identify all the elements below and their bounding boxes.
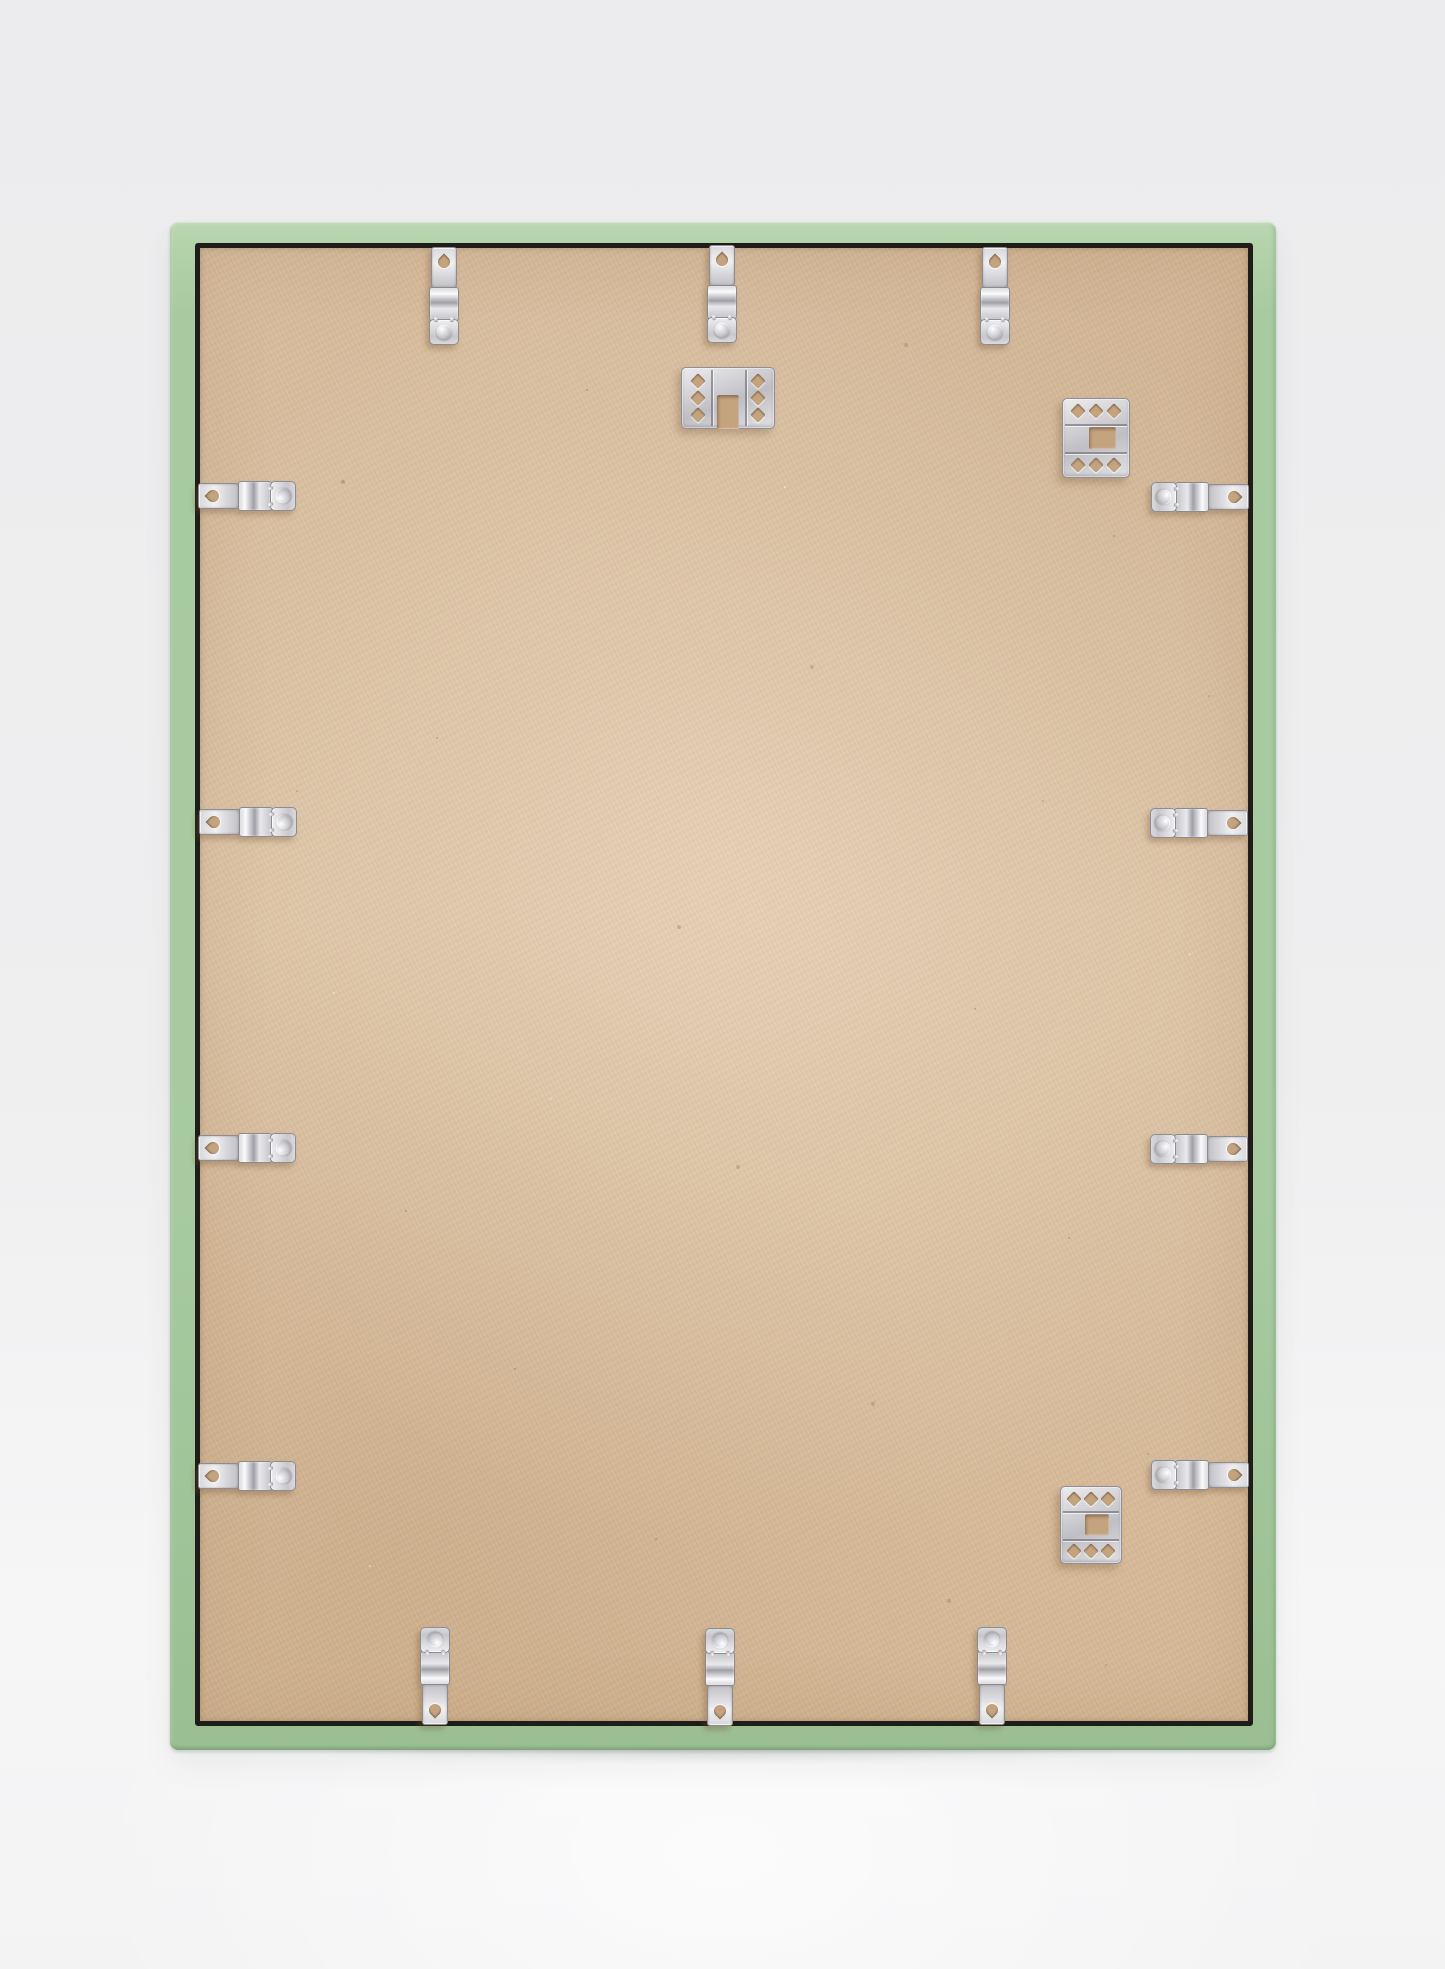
clip-rivet [1156, 816, 1171, 831]
clip-screw [1175, 1465, 1179, 1469]
photo-stage [0, 0, 1445, 1969]
clip-foot-plate [1151, 482, 1177, 512]
clip-foot-plate [420, 1627, 450, 1653]
clip-screw [710, 1652, 714, 1656]
hanger-hole [1100, 1543, 1116, 1559]
spring-clip-body [1153, 1460, 1249, 1490]
teardrop-hole [987, 254, 1004, 271]
clip-tear-plate [198, 1463, 240, 1489]
clip-rivet [985, 1633, 1000, 1648]
clip-tear-plate [199, 809, 241, 835]
clip-spring-bend [1175, 482, 1209, 512]
clip-foot-plate [429, 319, 459, 345]
spring-clip-body [1152, 808, 1248, 838]
hanger-plate-body [681, 367, 775, 429]
teardrop-hole [712, 1703, 729, 1720]
clip-spring-bend [707, 285, 737, 319]
spring-clip-body [705, 1630, 735, 1726]
clip-tear-plate [1207, 484, 1249, 510]
spring-clip-body [198, 1133, 294, 1163]
hanger-hole [1088, 404, 1104, 420]
clip-spring-bend [420, 1651, 450, 1685]
hanger-hole [1107, 404, 1123, 420]
hanger-plate-body [1060, 1486, 1122, 1564]
teardrop-hole [1226, 489, 1243, 506]
clip-screw [1175, 1481, 1179, 1485]
clip-screw [268, 1466, 272, 1470]
clip-screw [434, 317, 438, 321]
clip-rivet [1157, 490, 1172, 505]
spring-clip-body [198, 481, 294, 511]
clip-screw [441, 1651, 445, 1655]
clip-screw [425, 1651, 429, 1655]
clip-screw [268, 1482, 272, 1486]
clip-tear-plate [431, 247, 457, 289]
teardrop-hole [427, 1702, 444, 1719]
hanger-hole [1070, 404, 1086, 420]
teardrop-hole [714, 252, 731, 269]
hanger-notch [1085, 1514, 1109, 1535]
hanger-hole [751, 407, 767, 423]
clip-screw [268, 502, 272, 506]
clip-rivet [1156, 1142, 1171, 1157]
hanger-hole [751, 390, 767, 406]
clip-rivet [276, 489, 291, 504]
clip-screw [998, 1651, 1002, 1655]
hanger-hole [1066, 1491, 1082, 1507]
clip-spring-bend [977, 1651, 1007, 1685]
clip-tear-plate [1206, 1136, 1248, 1162]
clip-spring-bend [1174, 1134, 1208, 1164]
clip-foot-plate [707, 317, 737, 343]
clip-tear-plate [1207, 1462, 1249, 1488]
hanger-plate-body [1062, 398, 1130, 478]
clip-screw [268, 1154, 272, 1158]
clip-spring-bend [238, 1461, 272, 1491]
spring-clip-body [420, 1629, 450, 1725]
clip-rivet [713, 1634, 728, 1649]
teardrop-hole [206, 814, 223, 831]
clip-screw [1174, 813, 1178, 817]
clip-screw [268, 1138, 272, 1142]
clip-screw [726, 1652, 730, 1656]
clip-tear-plate [1206, 810, 1248, 836]
clip-screw [1174, 1155, 1178, 1159]
clip-foot-plate [1151, 1460, 1177, 1490]
hanger-rib [1065, 452, 1127, 454]
clip-tear-plate [198, 483, 240, 509]
clip-rivet [276, 1469, 291, 1484]
spring-clip-body [1153, 482, 1249, 512]
hanger-hole [751, 373, 767, 389]
teardrop-hole [1226, 1467, 1243, 1484]
clip-screw [1175, 503, 1179, 507]
clip-screw [728, 315, 732, 319]
teardrop-hole [1225, 1141, 1242, 1158]
clip-screw [268, 486, 272, 490]
clip-rivet [428, 1633, 443, 1648]
spring-clip-body [198, 1461, 294, 1491]
clip-tear-plate [979, 1683, 1005, 1725]
clip-screw [269, 828, 273, 832]
hanger-rib [1063, 1539, 1119, 1541]
clip-foot-plate [1150, 808, 1176, 838]
clip-rivet [437, 325, 452, 340]
clip-screw [982, 1651, 986, 1655]
clip-spring-bend [429, 287, 459, 321]
clip-spring-bend [239, 807, 273, 837]
clip-rivet [1157, 1468, 1172, 1483]
hanger-hole [690, 390, 706, 406]
clip-rivet [276, 1141, 291, 1156]
clip-foot-plate [705, 1628, 735, 1654]
hanger-notch [717, 395, 739, 429]
backing-specks [200, 248, 202, 250]
hanger-hole [1107, 457, 1123, 473]
hanger-rib [745, 370, 747, 426]
clip-spring-bend [1174, 808, 1208, 838]
hanger-rib [1063, 1511, 1119, 1513]
hanger-hole [690, 373, 706, 389]
hanger-notch [1089, 427, 1115, 449]
hanger-hole [1083, 1543, 1099, 1559]
clip-rivet [715, 323, 730, 338]
clip-tear-plate [709, 245, 735, 287]
spring-clip-body [977, 1629, 1007, 1725]
hanger-hole [1070, 457, 1086, 473]
spring-clip-body [980, 247, 1010, 343]
clip-spring-bend [1175, 1460, 1209, 1490]
clip-spring-bend [238, 481, 272, 511]
clip-screw [450, 317, 454, 321]
clip-foot-plate [270, 1461, 296, 1491]
hanger-rib [711, 370, 713, 426]
hanger-hole [1088, 457, 1104, 473]
spring-clip-body [707, 245, 737, 341]
hanger-hole [1083, 1491, 1099, 1507]
hanger-hole [690, 407, 706, 423]
clip-foot-plate [271, 807, 297, 837]
clip-spring-bend [238, 1133, 272, 1163]
teardrop-hole [436, 254, 453, 271]
clip-screw [1001, 317, 1005, 321]
teardrop-hole [1225, 815, 1242, 832]
clip-screw [1174, 829, 1178, 833]
clip-tear-plate [982, 247, 1008, 289]
clip-screw [269, 812, 273, 816]
clip-tear-plate [198, 1135, 240, 1161]
teardrop-hole [984, 1702, 1001, 1719]
teardrop-hole [205, 488, 222, 505]
clip-foot-plate [270, 481, 296, 511]
hanger-rib [1065, 424, 1127, 426]
clip-foot-plate [270, 1133, 296, 1163]
clip-spring-bend [980, 287, 1010, 321]
hanger-hole [1100, 1491, 1116, 1507]
spring-clip-body [199, 807, 295, 837]
spring-clip-body [1152, 1134, 1248, 1164]
teardrop-hole [205, 1140, 222, 1157]
hanger-hole [1066, 1543, 1082, 1559]
clip-foot-plate [1150, 1134, 1176, 1164]
clip-screw [712, 315, 716, 319]
clip-rivet [277, 815, 292, 830]
clip-foot-plate [980, 319, 1010, 345]
clip-spring-bend [705, 1652, 735, 1686]
clip-screw [985, 317, 989, 321]
spring-clip-body [429, 247, 459, 343]
clip-tear-plate [707, 1684, 733, 1726]
clip-foot-plate [977, 1627, 1007, 1653]
teardrop-hole [205, 1468, 222, 1485]
clip-tear-plate [422, 1683, 448, 1725]
clip-screw [1175, 487, 1179, 491]
clip-screw [1174, 1139, 1178, 1143]
clip-rivet [988, 325, 1003, 340]
